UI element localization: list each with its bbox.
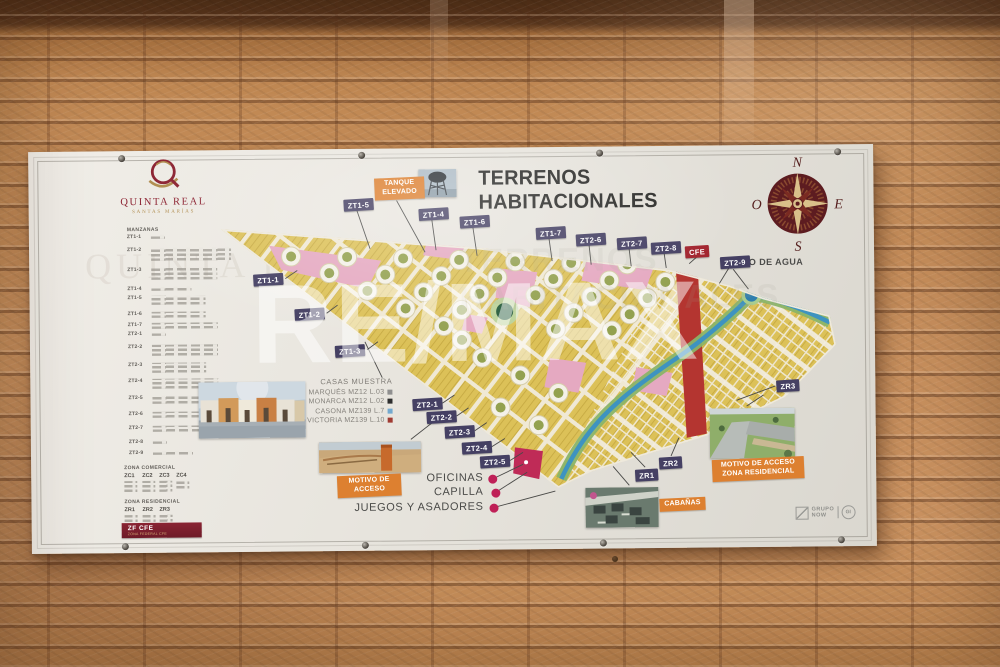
zone-badge-zt1-6: ZT1-6 [459, 215, 489, 229]
casa-swatch [388, 408, 393, 413]
manzana-lot-numbers [151, 235, 165, 239]
q-monogram-icon [143, 157, 183, 191]
manzana-label: ZT1-4 [127, 286, 147, 292]
grupo-text: GRUPO [812, 506, 835, 512]
casa-swatch [388, 418, 393, 423]
compass-north-label: N [791, 156, 802, 171]
manzanas-row: ZT2-1 [128, 331, 166, 337]
compass-rose-icon: N O E S [746, 152, 849, 255]
zone-badge-zt2-1: ZT2-1 [412, 397, 442, 411]
callout-oficinas: OFICINAS [331, 472, 483, 485]
casa-name: MARQUÉS MZ12 L.03 [308, 388, 384, 396]
zone-badge-zt2-5: ZT2-5 [480, 455, 510, 469]
zc-values [142, 481, 155, 492]
manzanas-row: ZT1-4 [127, 286, 191, 293]
manzanas-row: ZT1-6 [128, 310, 206, 318]
manzana-label: ZT2-3 [128, 362, 148, 368]
map-oficinas-block [513, 447, 543, 479]
zr-values [160, 515, 173, 522]
motivo-acceso-residencial-photo [710, 408, 795, 459]
manzanas-row: ZT2-8 [129, 439, 167, 445]
manzana-lot-numbers [151, 267, 217, 280]
logo-divider [837, 506, 838, 518]
zc-col: ZC1 [124, 473, 134, 479]
zona-residencial-title: ZONA RESIDENCIAL [124, 499, 180, 506]
zone-badge-zt1-7: ZT1-7 [536, 226, 566, 240]
manzana-label: ZT1-7 [128, 322, 148, 328]
zr-col: ZR1 [125, 507, 135, 513]
grupo-now-text: GRUPO NOW [812, 506, 835, 519]
zr-values [125, 515, 138, 522]
motivo-acceso-residencial-line2: ZONA RESIDENCIAL [722, 467, 794, 477]
partner-mark-icon: GI [841, 505, 855, 519]
man zanas-row: ZT2-9 [129, 449, 193, 456]
zone-badge-zt2-7: ZT2-7 [617, 236, 647, 250]
zr-col: ZR3 [160, 507, 170, 513]
manzana-lot-numbers [153, 450, 193, 454]
now-text: NOW [812, 512, 827, 518]
grupo-now-logo: GRUPO NOW GI [796, 505, 856, 520]
zc-col: ZC3 [159, 473, 169, 479]
manzana-label: ZT2-8 [129, 439, 149, 445]
manzana-lot-numbers [151, 247, 231, 261]
callout-capilla: CAPILLA [331, 486, 483, 499]
manzana-lot-numbers [152, 362, 206, 373]
screw [362, 542, 369, 549]
page-title: TERRENOS HABITACIONALES [478, 164, 750, 215]
zone-badge-zt2-8: ZT2-8 [651, 241, 681, 255]
screw [600, 540, 607, 547]
zone-badge-zt2-2: ZT2-2 [426, 410, 456, 424]
manzana-lot-numbers [152, 344, 218, 356]
callout-dot [489, 504, 498, 513]
manzana-label: ZT2-5 [128, 395, 148, 401]
zone-badge-zt1-4: ZT1-4 [418, 207, 448, 221]
screw [122, 543, 129, 550]
manzana-label: ZT2-2 [128, 344, 148, 350]
manzana-lot-numbers [151, 287, 191, 291]
manzana-label: ZT1-5 [127, 295, 147, 301]
zr-col: ZR2 [143, 507, 153, 513]
callout-dot [488, 475, 497, 484]
motivo-acceso-photo [319, 441, 421, 473]
manzana-label: ZT2-1 [128, 331, 148, 337]
manzana-label: ZT1-6 [128, 311, 148, 317]
screw [596, 150, 603, 157]
zone-badge-zt2-6: ZT2-6 [576, 233, 606, 247]
zone-badge-zt1-3: ZT1-3 [335, 344, 365, 358]
manzana-label: ZT2-7 [129, 425, 149, 431]
sign-board: QUINTA REAL TERRENOS HABITACIONALES QUIN… [28, 144, 877, 554]
cabanas-photo [585, 487, 658, 528]
manzana-lot-numbers [152, 311, 206, 318]
zone-badge-zr1: ZR1 [635, 468, 659, 481]
manzana-lot-numbers [153, 440, 167, 444]
zone-badge-zt1-1: ZT1-1 [253, 273, 283, 287]
screw [838, 536, 845, 543]
manzana-label: ZT1-1 [127, 234, 147, 240]
zc-values [176, 481, 189, 489]
zone-badge-zt2-4: ZT2-4 [462, 441, 492, 455]
callout-juegos: JUEGOS Y ASADORES [331, 501, 483, 514]
manzana-label: ZT1-3 [127, 267, 147, 273]
manzanas-row: ZT2-2 [128, 343, 218, 356]
zone-badge-zr2: ZR2 [659, 456, 683, 469]
casa-name: MONARCA MZ12 L.02 [309, 398, 385, 406]
manzana-lot-numbers [151, 295, 205, 305]
zone-badge-zt2-3: ZT2-3 [444, 425, 474, 439]
screw [834, 148, 841, 155]
zone-badge-zt1-5: ZT1-5 [343, 198, 373, 212]
tanque-elevado-label: TANQUE ELEVADO [374, 176, 425, 200]
zone-badge-zt2-9: ZT2-9 [720, 255, 750, 269]
brand-name: QUINTA REAL [101, 196, 227, 208]
manzana-label: ZT2-9 [129, 450, 149, 456]
zone-badge-zt1-2: ZT1-2 [294, 307, 324, 321]
zc-values [124, 481, 137, 492]
manzanas-row: ZT1-3 [127, 266, 217, 280]
compass-east-label: E [833, 197, 843, 212]
screw [118, 155, 125, 162]
quinta-real-logo: QUINTA REAL SANTAS MARÍAS [100, 156, 227, 215]
zr-values [143, 515, 156, 522]
casa-name: CASONA MZ139 L.7 [315, 407, 384, 415]
zone-badge-cfe: CFE [685, 245, 710, 258]
compass-west-label: O [752, 198, 762, 213]
manzanas-row: ZT2-7 [129, 424, 207, 432]
manzanas-row: ZT1-1 [127, 234, 165, 240]
screw [358, 152, 365, 159]
photo-scene: QUINTA REAL TERRENOS HABITACIONALES QUIN… [0, 0, 1000, 667]
zona-comercial-title: ZONA COMERCIAL [124, 465, 175, 471]
manzanas-row: ZT2-6 [129, 410, 207, 418]
cabanas-label: CABAÑAS [659, 497, 706, 512]
zone-badge-zr3: ZR3 [776, 379, 800, 392]
casa-swatch [387, 389, 392, 394]
zf-cfe-banner: ZF CFE ZONA FEDERAL CFE [122, 522, 202, 538]
casas-muestra-photo [198, 381, 306, 438]
manzana-label: ZT2-4 [128, 378, 148, 384]
casa-swatch [387, 399, 392, 404]
zc-col: ZC2 [142, 473, 152, 479]
grupo-now-icon [796, 506, 809, 519]
manzana-label: ZT1-2 [127, 247, 147, 253]
manzana-label: ZT2-6 [129, 411, 149, 417]
manzanas-title: MANZANAS [127, 227, 159, 233]
zc-values [159, 481, 172, 492]
manzanas-row: ZT1-2 [127, 246, 231, 261]
motivo-acceso-residencial-label: MOTIVO DE ACCESO ZONA RESIDENCIAL [712, 456, 805, 482]
manzanas-row: ZT2-3 [128, 361, 206, 373]
zc-col: ZC4 [176, 473, 186, 479]
manzanas-row: ZT1-5 [127, 294, 205, 305]
zf-cfe-subtitle: ZONA FEDERAL CFE [128, 531, 202, 536]
manzanas-row: ZT1-7 [128, 321, 218, 329]
manzanas-row: ZT2-5 [128, 394, 206, 404]
casa-name: VICTORIA MZ139 L.10 [307, 417, 385, 425]
wall-bolt [612, 556, 618, 562]
callout-dot [491, 489, 500, 498]
compass-south-label: S [794, 240, 801, 255]
manzana-lot-numbers [152, 322, 218, 329]
manzana-lot-numbers [152, 332, 166, 336]
